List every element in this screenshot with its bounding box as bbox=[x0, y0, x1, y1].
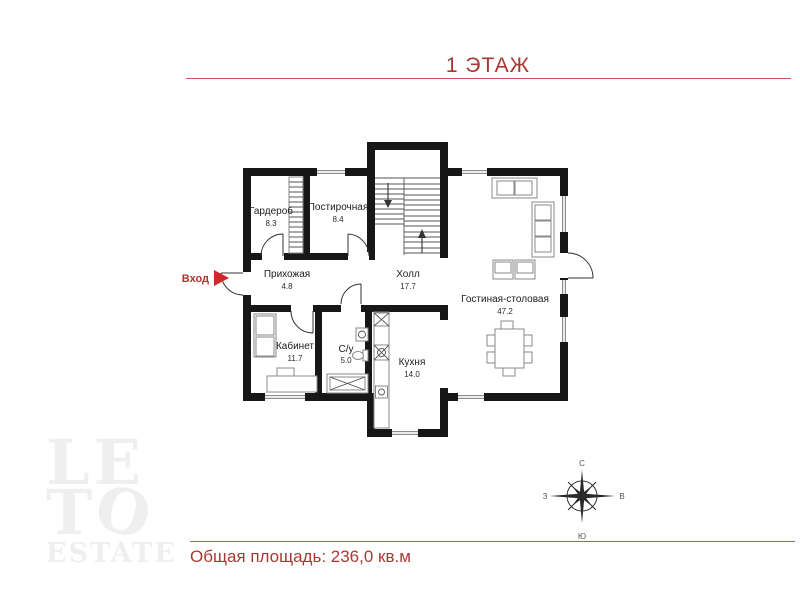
room-name: Гостиная-столовая bbox=[461, 294, 549, 305]
compass-west-label: З bbox=[543, 492, 548, 501]
total-area-text: Общая площадь: 236,0 кв.м bbox=[190, 547, 411, 567]
compass-rose-icon: С Ю З В bbox=[543, 459, 625, 541]
office-desk bbox=[267, 368, 317, 392]
terrace-door-arc bbox=[568, 253, 593, 278]
room-name: Кабинет bbox=[276, 340, 314, 352]
entrance-label: Вход bbox=[182, 273, 209, 285]
armchair bbox=[515, 260, 535, 279]
compass-east-label: В bbox=[619, 492, 624, 501]
bathroom-door-arc bbox=[341, 284, 361, 304]
footer-rule bbox=[190, 541, 795, 542]
room-name: С/у bbox=[339, 344, 354, 355]
room-label-living-dining: Гостиная-столовая 47.2 bbox=[461, 294, 549, 316]
room-area: 17.7 bbox=[400, 282, 416, 291]
room-label-hallway: Прихожая 4.8 bbox=[264, 269, 310, 291]
room-area: 8.3 bbox=[265, 219, 277, 228]
kitchen-counter bbox=[374, 312, 389, 428]
office-door-arc bbox=[291, 311, 313, 333]
room-label-kitchen: Кухня 14.0 bbox=[399, 357, 426, 379]
room-area: 11.7 bbox=[288, 354, 304, 363]
bathtub bbox=[327, 374, 368, 393]
armchair bbox=[493, 260, 513, 279]
room-area: 8.4 bbox=[332, 215, 344, 224]
room-label-office: Кабинет 11.7 bbox=[276, 340, 314, 363]
kitchen-sink bbox=[374, 345, 389, 360]
compass-south-label: Ю bbox=[578, 532, 586, 541]
room-label-laundry: Постирочная 8.4 bbox=[308, 202, 369, 224]
room-area: 4.8 bbox=[281, 282, 293, 291]
room-label-wardrobe: Гардероб 8.3 bbox=[249, 205, 293, 228]
staircase bbox=[375, 178, 440, 255]
room-name: Прихожая bbox=[264, 269, 310, 280]
room-name: Холл bbox=[396, 269, 420, 280]
toilet bbox=[353, 350, 369, 361]
room-area: 47.2 bbox=[497, 307, 513, 316]
kitchen-stove bbox=[376, 386, 388, 398]
office-sofa bbox=[254, 314, 276, 357]
floor-plan-page: 1 ЭТАЖ bbox=[0, 0, 800, 600]
room-name: Гардероб bbox=[249, 205, 293, 217]
entrance-arrow-icon bbox=[214, 270, 229, 286]
room-area: 14.0 bbox=[404, 370, 420, 379]
room-name: Кухня bbox=[399, 357, 426, 368]
stairs-up-arrow-icon bbox=[418, 229, 426, 253]
room-area: 5.0 bbox=[340, 356, 352, 365]
room-name: Постирочная bbox=[308, 202, 369, 213]
room-label-hall: Холл 17.7 bbox=[396, 269, 420, 291]
logo-letter-o: O bbox=[91, 481, 159, 543]
living-room-sofa-right bbox=[532, 202, 554, 257]
leto-estate-watermark: LE TO ESTATE bbox=[46, 438, 177, 565]
dining-table bbox=[487, 321, 532, 376]
compass-north-label: С bbox=[579, 459, 585, 468]
entrance-marker: Вход bbox=[182, 270, 229, 286]
logo-line-to: TO bbox=[46, 488, 177, 538]
living-room-sofa-top bbox=[492, 178, 537, 198]
washbasin bbox=[356, 328, 368, 341]
room-label-bathroom: С/у 5.0 bbox=[339, 344, 354, 365]
